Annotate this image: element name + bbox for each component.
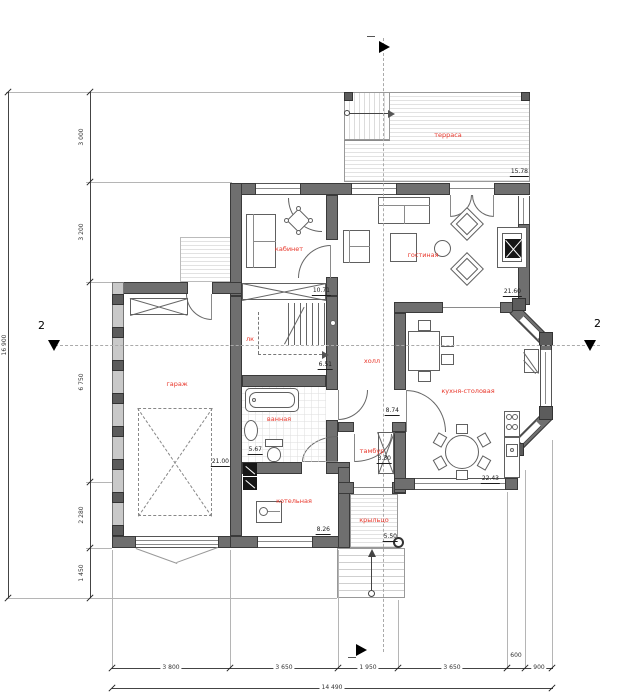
wall-segment <box>392 422 406 432</box>
toilet-bowl <box>267 447 281 462</box>
door-leaf <box>450 195 451 217</box>
dim-tick <box>548 684 555 691</box>
dining-table <box>408 331 440 371</box>
dim-left-total: 16 900 <box>2 335 8 356</box>
study-window <box>256 183 300 195</box>
room-area-terrace: 15.78 <box>510 169 529 177</box>
threshold-line <box>354 487 392 488</box>
section-label-left: 2 <box>38 320 45 331</box>
garage-door-opening <box>188 282 212 294</box>
wall-segment <box>326 195 338 240</box>
dim-bottom-2: 1 950 <box>357 665 378 671</box>
extension-line <box>6 92 344 93</box>
room-label-living: гостиная <box>407 252 438 259</box>
dim-bottom-1: 3 650 <box>273 665 294 671</box>
section-mark <box>367 36 375 37</box>
bay-corner <box>539 332 553 346</box>
terrace-stair-arrow-start <box>344 110 350 116</box>
garage-gate <box>136 536 218 548</box>
sink <box>244 420 258 441</box>
round-table-chair <box>456 424 468 434</box>
dim-left-0: 3 000 <box>79 128 85 145</box>
extension-line <box>552 440 553 668</box>
wall-segment <box>230 183 242 296</box>
room-area-bathroom: 5.67 <box>248 447 263 455</box>
window-line <box>352 188 396 189</box>
wall-pier <box>112 294 124 305</box>
extension-line <box>525 470 526 668</box>
dim-bottom-0: 3 800 <box>160 665 181 671</box>
section-mark <box>348 657 356 658</box>
bay-corner <box>539 406 553 420</box>
room-label-porch: крыльцо <box>359 517 389 524</box>
section-arrow-right <box>584 340 596 351</box>
terrace-post <box>344 92 353 101</box>
round-table-chair <box>477 432 492 447</box>
door-leaf <box>354 434 355 462</box>
room-area-stair: 6.51 <box>318 362 333 370</box>
wall-pier <box>112 327 124 338</box>
extension-line <box>86 182 232 183</box>
round-table-chair <box>477 455 492 470</box>
extension-line <box>507 492 508 668</box>
window-line <box>256 188 300 189</box>
sofa-cushion-line <box>404 205 405 224</box>
wall-segment <box>394 302 443 313</box>
room-area-study: 10.71 <box>312 288 331 296</box>
wall-pier <box>112 459 124 470</box>
chair-leg <box>284 218 289 223</box>
room-label-study: кабинет <box>275 246 303 253</box>
wall-segment <box>326 296 338 390</box>
wall-segment <box>230 296 242 536</box>
dim-left-4: 1 450 <box>79 564 85 581</box>
dining-chair <box>418 371 431 382</box>
boiler-dial <box>259 507 268 516</box>
wall-segment <box>338 467 350 548</box>
wall-segment <box>230 536 258 548</box>
dim-left-1: 3 200 <box>79 223 85 240</box>
room-area-garage: 21.00 <box>211 459 230 467</box>
toilet-tank <box>265 439 283 447</box>
wall-pier <box>112 426 124 437</box>
window-line <box>523 198 524 224</box>
extension-line <box>6 598 337 599</box>
terrace-door-arc <box>472 195 494 217</box>
boiler-window <box>258 536 312 548</box>
opening-line <box>443 307 500 308</box>
room-area-hall: 8.74 <box>385 408 400 416</box>
extension-line <box>338 550 339 668</box>
door-leaf <box>338 390 339 420</box>
bathtub-drain <box>252 398 256 402</box>
wall-segment <box>494 183 530 195</box>
chair-leg <box>308 218 313 223</box>
extension-line <box>398 600 399 668</box>
wall-pier <box>112 360 124 371</box>
wall-segment <box>242 375 326 387</box>
gate-line <box>136 544 218 545</box>
dim-bottom-4: 600 <box>508 653 523 659</box>
bay-window <box>517 421 541 445</box>
section-arrow-top <box>379 41 390 53</box>
steps-arrow-head <box>368 549 376 557</box>
bay-window <box>540 350 552 406</box>
sofa-cushion-line <box>349 246 370 247</box>
room-label-bathroom: ванная <box>267 416 291 423</box>
wall-segment <box>394 478 415 490</box>
dim-bottom-5: 900 <box>531 665 546 671</box>
room-label-kitchen: кухня-столовая <box>441 388 494 395</box>
entrance-opening <box>354 482 392 494</box>
room-area-boiler: 8.26 <box>316 527 331 535</box>
terrace-post <box>521 92 530 101</box>
section-label-right: 2 <box>594 318 601 329</box>
dim-tick <box>548 664 555 671</box>
sink-drain <box>510 448 514 452</box>
chair-leg <box>296 230 301 235</box>
garage-stoop <box>180 237 232 282</box>
driveway-line <box>136 548 178 564</box>
door-leaf <box>211 294 212 320</box>
wall-segment <box>396 183 450 195</box>
section-arrow-bottom <box>356 644 367 656</box>
wall-pier <box>112 525 124 536</box>
room-label-garage: гараж <box>166 381 187 388</box>
wall-segment <box>112 536 136 548</box>
garage-door-arc <box>186 294 212 320</box>
door-leaf <box>406 390 407 432</box>
burner <box>512 414 518 420</box>
stair-walkline <box>258 312 259 354</box>
room-label-terrace: терраса <box>434 132 462 139</box>
round-table-chair <box>456 470 468 480</box>
kitchen-door-arc <box>406 390 446 432</box>
terrace-stair-arrow-head <box>388 110 395 118</box>
room-area-porch: 5.50 <box>383 534 398 542</box>
dim-left-3: 2 280 <box>79 506 85 523</box>
steps-arrow-line <box>371 556 372 592</box>
burner <box>512 424 518 430</box>
living-window <box>352 183 396 195</box>
dimension-line-left <box>90 92 91 598</box>
chair-leg <box>296 206 301 211</box>
extension-line <box>112 550 113 668</box>
room-label-vestibule: тамбур <box>360 448 385 455</box>
sofa-cushion-line <box>253 241 276 242</box>
wall-segment <box>338 482 354 494</box>
wall-segment <box>505 478 518 490</box>
room-label-boiler: котельная <box>276 498 312 505</box>
dining-chair <box>418 320 431 331</box>
section-line-horizontal <box>55 345 600 346</box>
wall-segment <box>338 422 354 432</box>
window-line <box>545 352 546 404</box>
terrace-door-opening <box>450 183 494 195</box>
stair-newel <box>330 320 336 326</box>
steps-arrow-start <box>368 590 375 597</box>
room-label-stair: лк <box>246 336 254 343</box>
dim-bottom-3: 3 650 <box>441 665 462 671</box>
room-area-kitchen: 22.43 <box>481 476 500 484</box>
gate-line <box>136 540 218 541</box>
wall-pier <box>112 492 124 503</box>
boiler-pipe <box>268 511 280 512</box>
driveway-line <box>176 547 218 563</box>
floor-plan: 2 2 терраса кабинет гостиная лк холл гар… <box>0 0 640 700</box>
dimension-line-left-total <box>8 92 9 598</box>
dim-left-2: 6 750 <box>79 373 85 390</box>
room-label-hall: холл <box>364 358 380 365</box>
wall-pier <box>112 393 124 404</box>
round-table <box>445 435 479 469</box>
garage-west-wall <box>112 282 124 548</box>
bay-corner <box>512 298 526 311</box>
dim-bottom-total: 14 490 <box>320 685 345 691</box>
section-arrow-left <box>48 340 60 351</box>
wall-segment <box>300 183 352 195</box>
door-leaf <box>330 245 331 278</box>
room-area-living: 21.60 <box>503 289 522 297</box>
wall-segment <box>394 313 406 390</box>
window-line <box>258 541 312 542</box>
bathroom-door-arc <box>338 390 368 420</box>
stair-walkline <box>258 354 322 355</box>
dining-chair <box>441 354 454 365</box>
wall-segment <box>212 282 242 294</box>
stair-walkline-arrow <box>322 351 329 359</box>
living-east-window <box>518 196 530 224</box>
door-leaf <box>493 195 494 217</box>
room-area-vestibule: 3.30 <box>377 456 392 464</box>
threshold-line <box>450 188 494 189</box>
extension-line <box>230 550 231 668</box>
